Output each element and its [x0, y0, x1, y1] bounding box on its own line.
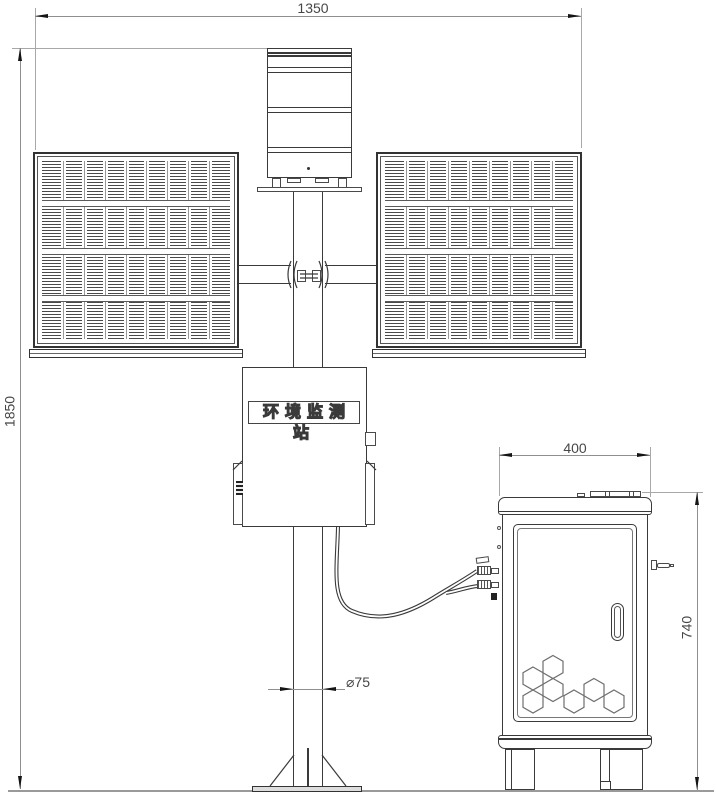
dim-cabinet-height-line [697, 492, 698, 790]
solar-panel-left-cells [42, 161, 230, 339]
dim-arrow-up [18, 48, 22, 61]
weather-sensor-body [267, 48, 352, 178]
box-bracket-right [365, 463, 375, 525]
technical-drawing-canvas: 1350 1850 ⌀75 [0, 0, 716, 800]
cable-gland-top [477, 566, 491, 575]
cabinet-bottom-band [498, 735, 652, 749]
door-handle [611, 603, 624, 641]
station-control-box: 环境监测站 [242, 367, 367, 527]
door-handle-inner [614, 606, 621, 638]
cabinet-top-cap [498, 497, 652, 515]
extension-line-sensor-top [12, 48, 268, 49]
dim-total-height-label: 1850 [3, 389, 18, 435]
side-socket [491, 593, 497, 600]
solar-panel-right [376, 152, 582, 348]
extension-line-right [650, 447, 651, 497]
station-name-text: 环境监测站 [249, 402, 359, 444]
solar-panel-left-sill [29, 349, 243, 358]
dim-top-width-line [35, 16, 581, 17]
cable-connector-spare [476, 556, 490, 564]
solar-panel-right-sill [372, 349, 586, 358]
panel-row-gap [42, 295, 230, 302]
dim-cabinet-width-label: 400 [545, 440, 605, 456]
box-side-conduit [365, 432, 376, 446]
panel-row-gap [42, 200, 230, 207]
dim-arrow-left [499, 453, 512, 457]
cable-plug-top [491, 568, 499, 574]
extension-line-left [35, 8, 36, 150]
sensor-band [268, 107, 351, 113]
clamp-bolt-plate-left [297, 270, 306, 282]
foot-notch [601, 781, 611, 789]
extension-line-right [581, 8, 582, 148]
cabinet-foot-right [600, 749, 643, 790]
dim-arrow-pole-right [323, 687, 336, 691]
pole-base-plate [252, 786, 362, 792]
solar-panel-left-inner-frame [37, 156, 235, 344]
station-name-plate: 环境监测站 [248, 401, 360, 424]
sensor-mount-tab [315, 178, 329, 183]
solar-panel-right-cells [385, 161, 573, 339]
sensor-cap-line [268, 55, 351, 57]
sensor-dot [307, 167, 310, 170]
dim-arrow-pole-left [280, 687, 293, 691]
dim-pole-diameter-label: ⌀75 [346, 674, 370, 691]
cable-gland-bottom [477, 580, 491, 589]
solar-panel-right-inner-frame [380, 156, 578, 344]
signal-cable [336, 527, 478, 617]
dim-arrow-left [35, 14, 48, 18]
panel-row-gap [385, 295, 573, 302]
band-edge-line [499, 738, 651, 740]
foot-line [511, 750, 512, 789]
box-hinge-vent [236, 481, 243, 495]
sensor-mount-tab [287, 178, 301, 183]
dim-top-width-label: 1350 [283, 0, 343, 16]
dim-arrow-right [568, 14, 581, 18]
dim-total-height-line [20, 48, 21, 789]
cable-plug-bottom [491, 582, 499, 588]
sensor-band [268, 67, 351, 73]
solar-panel-left [33, 152, 239, 348]
dim-cabinet-width-line [499, 455, 650, 456]
dim-cabinet-height-label: 740 [680, 605, 695, 651]
dim-arrow-down [695, 777, 699, 790]
cabinet-foot-left [505, 749, 535, 790]
support-arm-right [325, 265, 376, 284]
cap-edge-line [499, 511, 651, 513]
dim-arrow-right [637, 453, 650, 457]
side-rod [657, 563, 670, 568]
dim-arrow-up [695, 492, 699, 505]
clamp-bolt-plate-right [312, 270, 321, 282]
panel-row-gap [385, 248, 573, 255]
dim-arrow-down [18, 776, 22, 789]
sensor-band [268, 147, 351, 153]
panel-row-gap [42, 248, 230, 255]
sensor-cap-line [268, 52, 351, 54]
side-rod-tip [670, 564, 674, 567]
sensor-base-plate [257, 187, 362, 192]
hinge-dots [498, 527, 501, 549]
panel-row-gap [385, 200, 573, 207]
support-arm-left [239, 265, 291, 284]
